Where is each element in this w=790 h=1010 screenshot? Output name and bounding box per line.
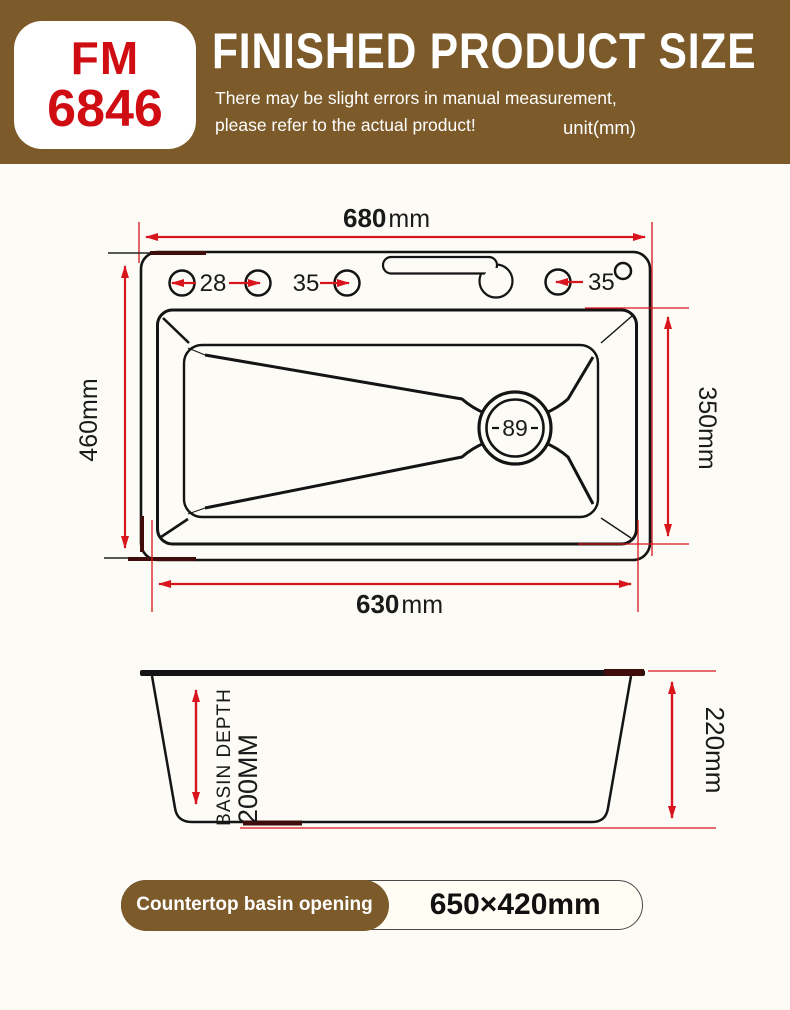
drain: 89: [479, 392, 551, 464]
dim-630: 630mm: [152, 520, 638, 619]
small-hole: [615, 263, 631, 279]
countertop-opening-value: 650×420mm: [389, 881, 643, 929]
sink-rim: [140, 670, 645, 676]
dim-680-label: 680mm: [343, 203, 430, 233]
dim-460: 460mm: [75, 266, 125, 548]
countertop-opening-pill: Countertop basin opening 650×420mm: [121, 880, 643, 930]
hole-dim-1-label: 28: [200, 270, 227, 297]
depth-value-text: 200MM: [233, 734, 263, 824]
dim-220: 220mm: [240, 671, 730, 828]
faucet-slot: [383, 257, 513, 298]
dim-depth-200: BASIN DEPTH 200MM: [196, 688, 263, 826]
top-view-diagram: 680mm: [75, 203, 721, 619]
dim-460-label: 460mm: [75, 378, 103, 461]
hole-dim-2-label: 35: [293, 270, 320, 297]
sink-outline: [141, 252, 650, 560]
depth-label-text: BASIN DEPTH: [214, 688, 235, 826]
basin-corner-bevels: [161, 316, 632, 538]
dim-220-label: 220mm: [700, 707, 730, 794]
spec-sheet-page: FM 6846 FINISHED PRODUCT SIZE There may …: [0, 0, 790, 1010]
sink-technical-drawing: 680mm: [0, 0, 790, 1010]
countertop-opening-label: Countertop basin opening: [121, 880, 389, 931]
side-view-diagram: BASIN DEPTH 200MM 220mm: [140, 669, 730, 828]
rim-accent-right: [604, 669, 644, 676]
dim-630-label: 630mm: [356, 589, 443, 619]
dim-350-label: 350mm: [693, 386, 721, 469]
hole-dim-3-label: 35: [588, 269, 615, 296]
drain-diameter-label: 89: [502, 415, 528, 441]
